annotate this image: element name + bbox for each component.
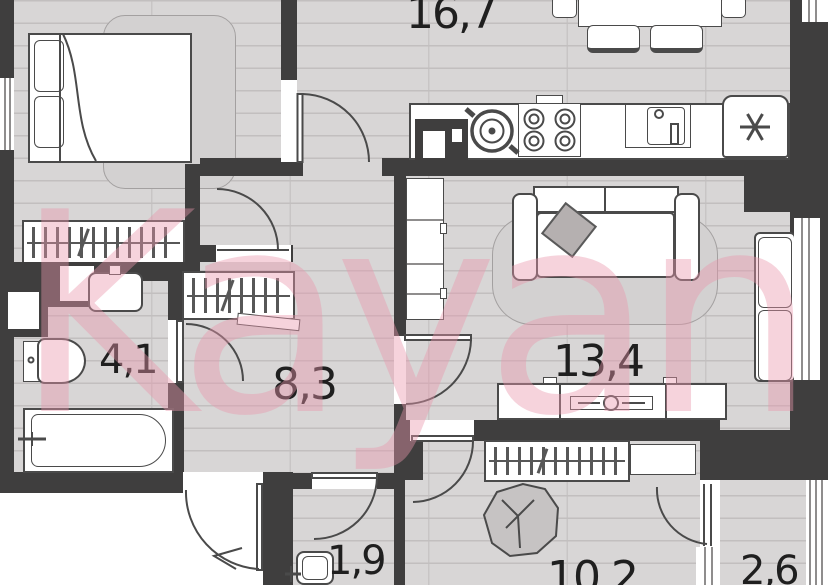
door-arc-bedroom2	[413, 441, 473, 502]
wc-faucet-icon	[285, 566, 301, 582]
door-leaf-entrance	[257, 484, 262, 570]
area-label-hallway: 8,3	[272, 363, 336, 407]
door-leaf-balcony	[704, 484, 711, 546]
sink-tap-icon	[655, 110, 678, 144]
door-arc-bedroom	[303, 94, 369, 162]
door-leaf-wc	[312, 473, 377, 478]
area-label-bedroom2: 10,2	[547, 556, 637, 585]
plan-annotations-layer	[0, 0, 828, 585]
door-arc-balcony	[657, 487, 707, 544]
door-leaf-bathroom	[177, 321, 183, 382]
toilet-flush-icon	[29, 358, 34, 363]
fridge-asterisk-icon	[740, 114, 770, 140]
area-label-wc: 1,9	[327, 541, 385, 581]
door-arc-lounge	[406, 340, 471, 404]
floor-plan: 16,7 4,1 8,3 13,4 1,9 10,2 2,6 Kayan	[0, 0, 828, 585]
blanket-fold	[60, 34, 96, 161]
area-label-bathroom: 4,1	[99, 340, 157, 380]
door-leaf-bedroom2	[412, 436, 473, 441]
tv-icon	[578, 396, 645, 410]
door-arc-nook	[217, 189, 278, 250]
door-arc-bathroom	[186, 324, 243, 381]
door-arc-wc	[314, 478, 377, 539]
pan-icon	[466, 109, 518, 153]
burner-icon	[525, 110, 575, 151]
area-label-lounge: 13,4	[553, 340, 643, 384]
bathtub-faucet-icon	[18, 432, 46, 446]
door-leaf-bedroom	[298, 94, 303, 162]
area-label-balcony: 2,6	[740, 551, 798, 585]
area-label-kitchen-living: 16,7	[406, 0, 496, 36]
door-arc-entrance	[186, 490, 259, 569]
plant-icon	[484, 484, 558, 556]
door-leaf-lounge	[405, 335, 471, 340]
